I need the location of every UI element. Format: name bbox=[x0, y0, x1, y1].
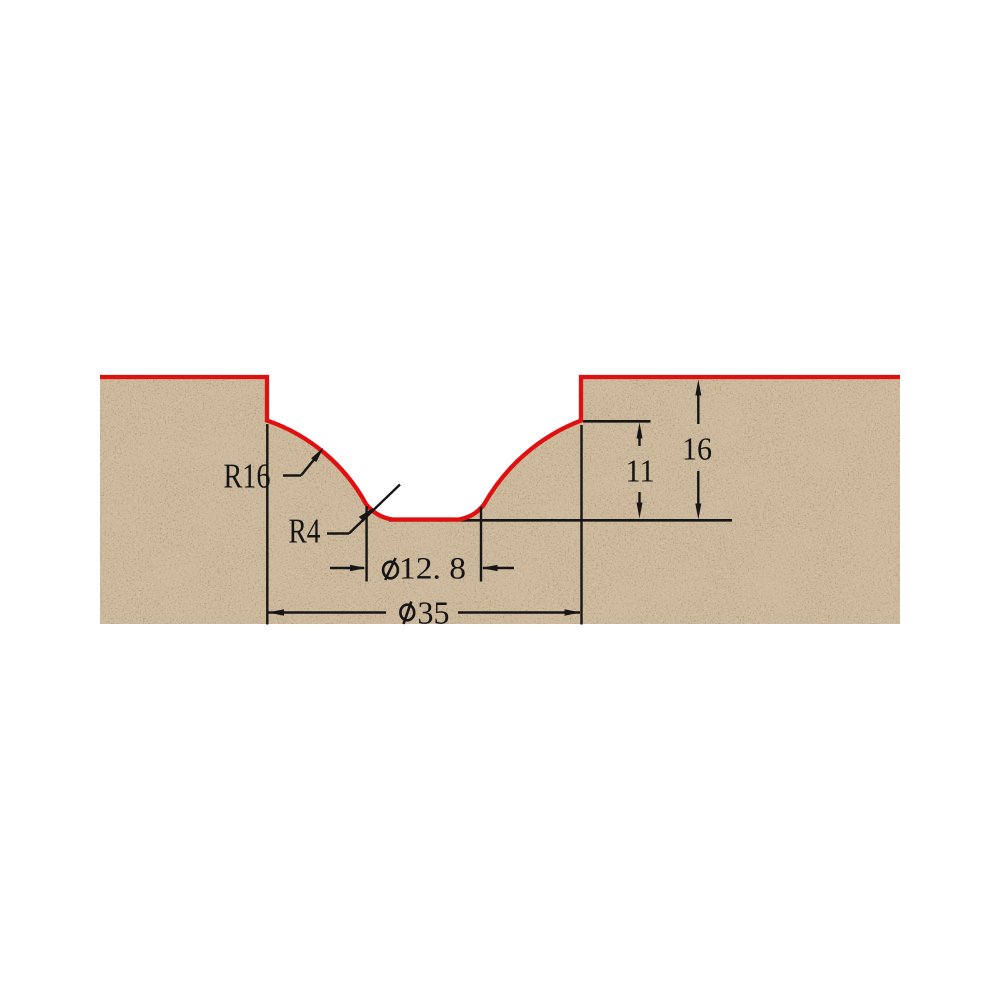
svg-text:12. 8: 12. 8 bbox=[399, 551, 466, 586]
svg-text:35: 35 bbox=[418, 595, 450, 631]
svg-text:R4: R4 bbox=[289, 512, 321, 551]
svg-text:11: 11 bbox=[626, 453, 655, 489]
svg-text:R16: R16 bbox=[224, 457, 271, 496]
svg-text:16: 16 bbox=[682, 431, 712, 467]
